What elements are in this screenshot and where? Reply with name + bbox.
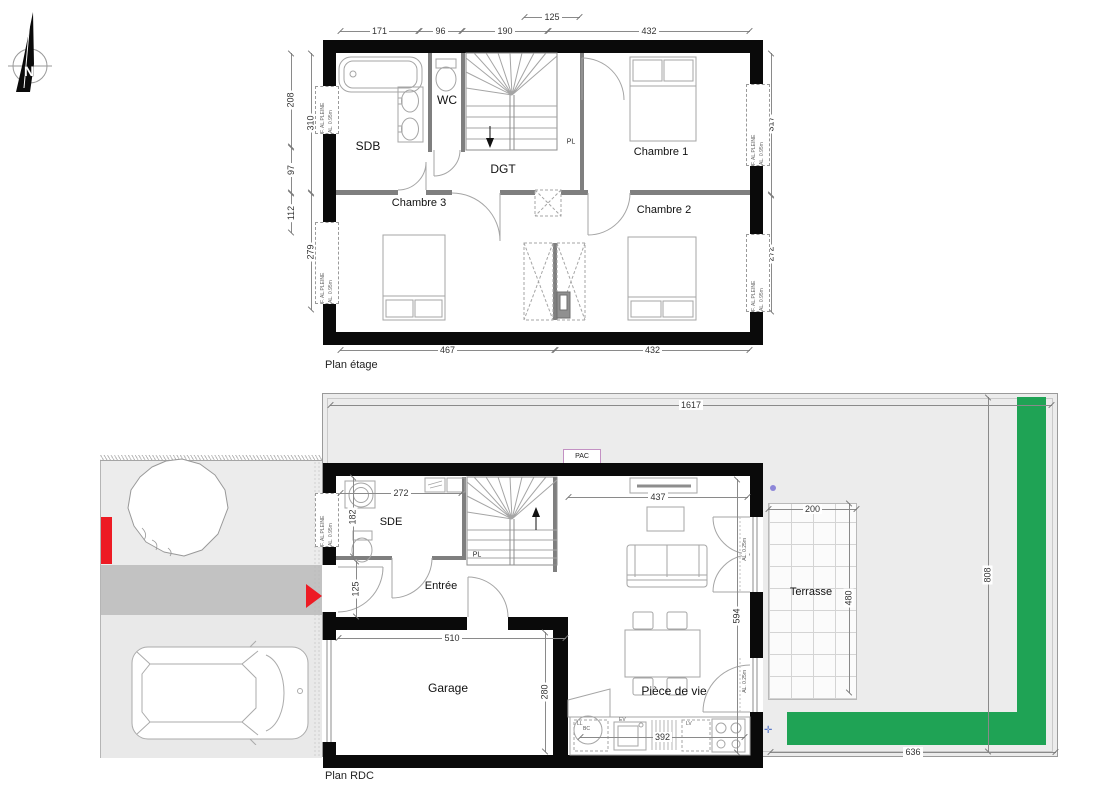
hedge-right [1017, 397, 1046, 744]
door-arc-garage [468, 577, 508, 617]
room-label-chambre3: Chambre 3 [392, 197, 446, 209]
coffee-table [647, 507, 684, 531]
kitchen-label-ev: EV [619, 717, 626, 723]
door-arc-wc [434, 150, 460, 176]
bed-chambre3 [383, 235, 445, 320]
door-arc-chambre2 [588, 193, 630, 235]
chimney [557, 292, 570, 318]
door-arc-chambre1 [582, 58, 624, 100]
bed-chambre1 [630, 57, 696, 141]
sofa [627, 545, 707, 587]
duct-box [535, 190, 561, 216]
toilet-upper [436, 59, 456, 91]
dim-floor0-392: 392 [580, 730, 745, 744]
room-label-entree: Entrée [425, 580, 457, 592]
tree [120, 455, 240, 561]
bed-chambre2 [628, 237, 696, 320]
dim-floor1-208: 208 [284, 53, 298, 147]
dim-floor1-97: 97 [284, 147, 298, 193]
closet-left [524, 243, 553, 320]
room-label-chambre2: Chambre 2 [637, 204, 691, 216]
dim-floor1-125: 125 [524, 10, 580, 24]
dim-floor0-510: 510 [338, 631, 566, 645]
floor0-title: Plan RDC [325, 770, 374, 782]
dim-floor0-1617: 1617 [330, 398, 1052, 412]
floorplan-canvas: N 125 171 96 190 432 208 97 112 310 279 … [0, 0, 1095, 800]
room-label-sde: SDE [380, 516, 403, 528]
compass-letter: N [24, 63, 34, 79]
dim-floor1-190: 190 [462, 24, 548, 38]
dim-floor0-594: 594 [730, 479, 744, 753]
placard-label-floor0: PL [473, 552, 482, 559]
dim-floor1-96: 96 [419, 24, 462, 38]
garage-door-lines [327, 640, 331, 742]
dim-floor0-280: 280 [538, 632, 552, 752]
room-label-terrasse: Terrasse [790, 586, 832, 598]
red-marker-bar [101, 517, 112, 564]
floor1-title: Plan étage [325, 359, 378, 371]
hedge-bottom [787, 712, 1046, 745]
dim-floor1-432-top: 432 [548, 24, 750, 38]
kitchen-label-lv: LV [686, 721, 692, 727]
utility-cross-icon: ✛ [764, 726, 772, 736]
room-label-wc: WC [437, 93, 457, 107]
vanity-double-sink [398, 87, 423, 142]
room-label-sdb: SDB [356, 139, 381, 153]
room-label-garage: Garage [428, 681, 468, 695]
entrance-arrow-icon [306, 584, 322, 608]
dim-floor1-171: 171 [340, 24, 419, 38]
utility-dot-garden [770, 485, 776, 491]
dim-floor0-437: 437 [568, 490, 748, 504]
placard-label-floor1: PL [567, 139, 576, 146]
door-arc-sde [392, 558, 432, 598]
door-arc-chambre3 [452, 193, 500, 241]
dining-table [625, 612, 700, 695]
stairs-upper [466, 53, 557, 150]
door-arc-sdb [398, 162, 426, 190]
dim-floor0-182: 182 [346, 477, 360, 557]
room-label-chambre1: Chambre 1 [634, 146, 688, 158]
floor1-drawing [323, 40, 763, 345]
car [125, 640, 315, 745]
dim-floor1-112: 112 [284, 193, 298, 233]
pac-unit: PAC [563, 449, 601, 464]
compass-north-icon: N [0, 0, 110, 110]
dim-floor1-467: 467 [340, 343, 555, 357]
dim-floor0-125: 125 [349, 561, 363, 617]
driveway [100, 565, 322, 615]
room-label-piece-de-vie: Pièce de vie [641, 684, 706, 698]
room-label-dgt: DGT [490, 162, 515, 176]
dim-floor0-480: 480 [842, 503, 856, 693]
dim-floor1-432-bottom: 432 [555, 343, 750, 357]
parcel-left-line [100, 461, 101, 758]
dim-floor0-808: 808 [981, 397, 995, 752]
dim-floor0-636: 636 [770, 745, 1056, 759]
kitchen-label-ll: LL [577, 721, 583, 727]
